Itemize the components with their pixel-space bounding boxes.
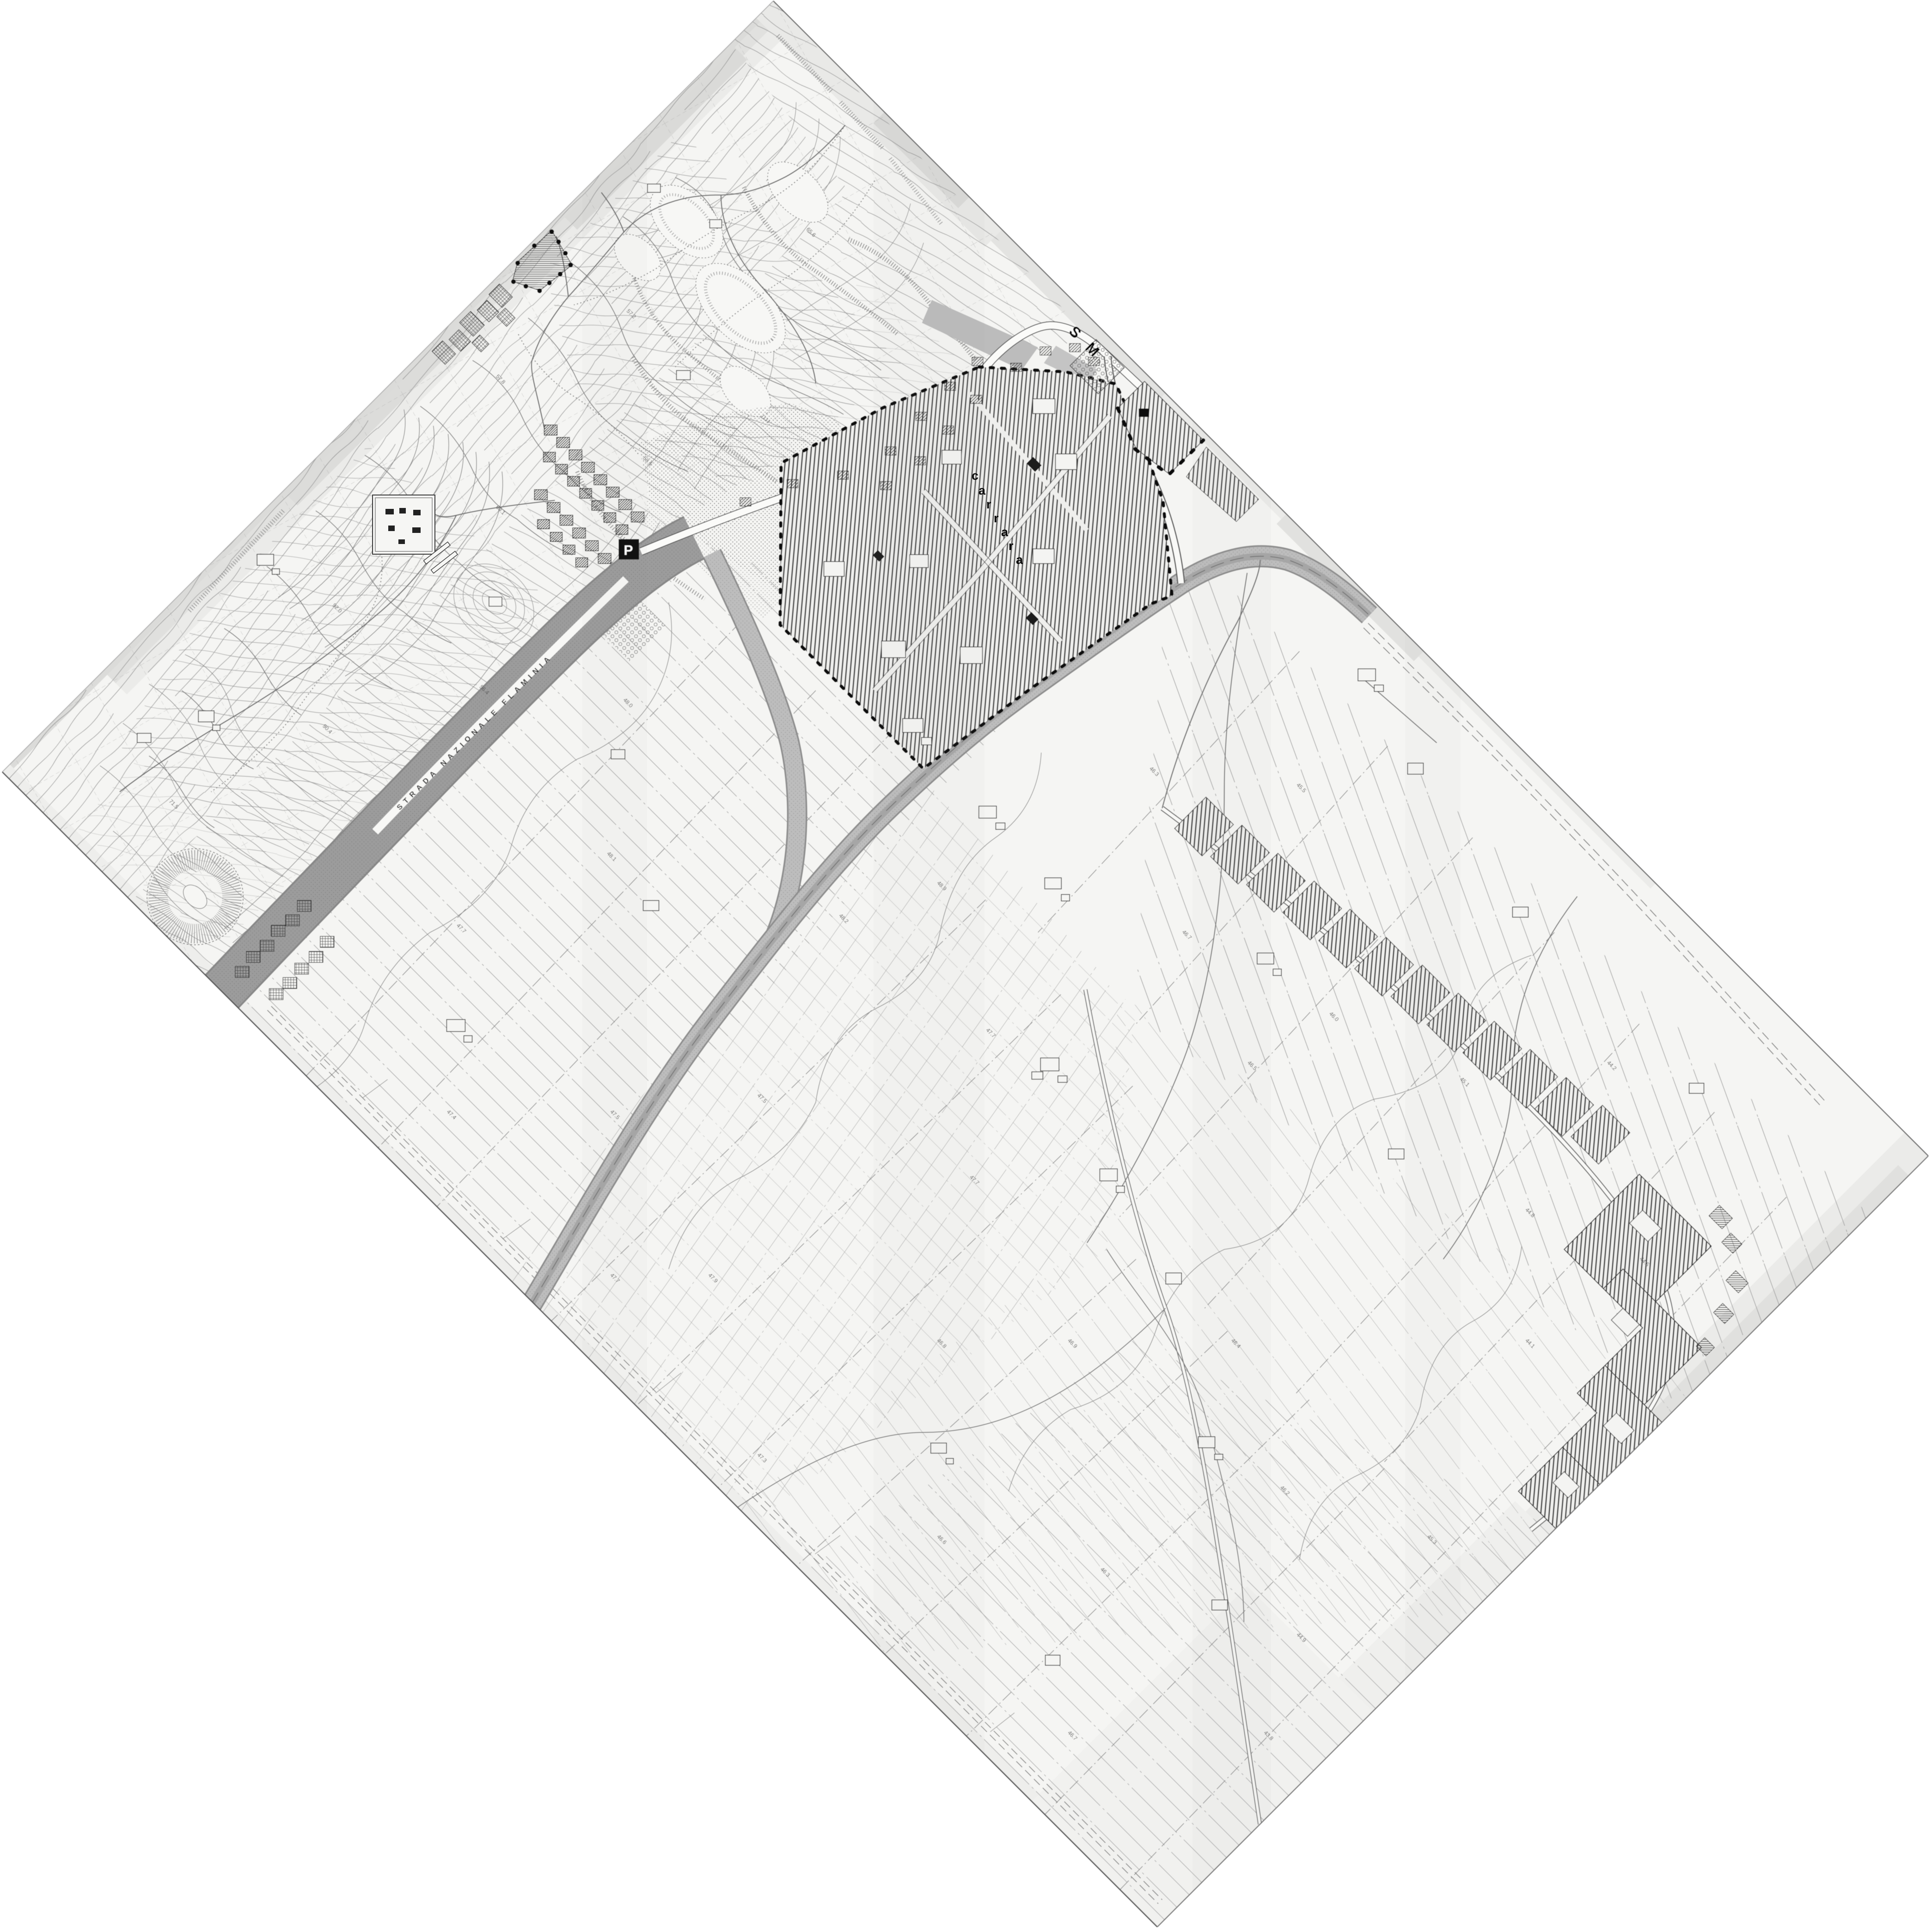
svg-text:r: r (986, 497, 991, 511)
svg-text:a: a (1001, 525, 1009, 539)
svg-text:r: r (1009, 539, 1014, 553)
svg-text:r: r (994, 511, 999, 525)
svg-text:a: a (1016, 553, 1023, 567)
